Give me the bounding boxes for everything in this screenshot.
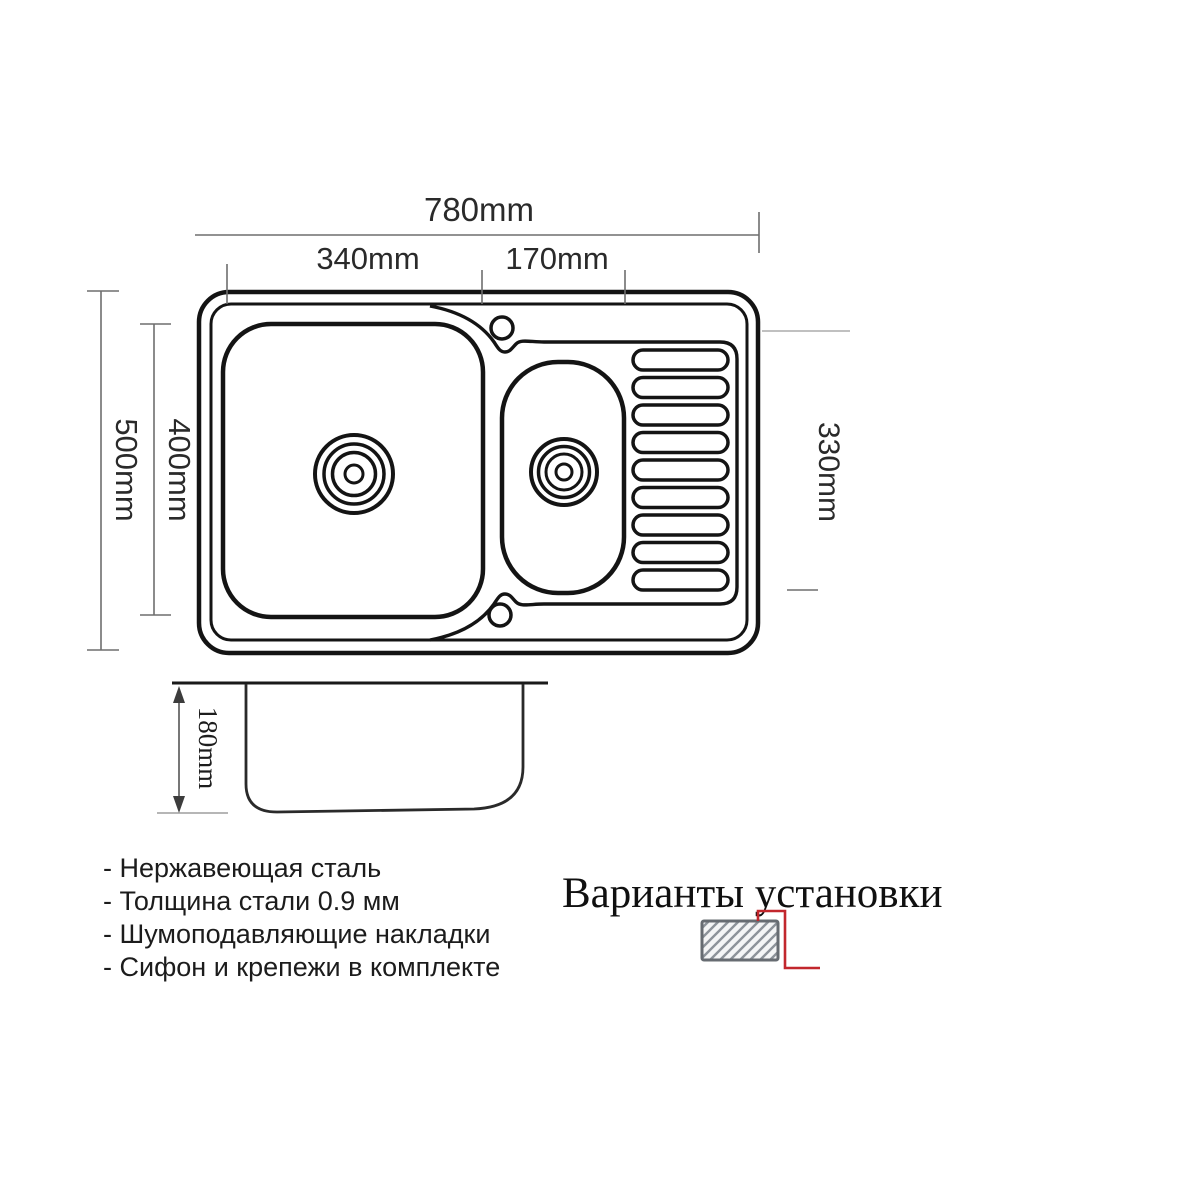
sink-spec-diagram: 780mm 340mm 170mm 500mm 400mm 330mm 180m… xyxy=(0,0,1200,1200)
drainboard-rib xyxy=(633,378,728,398)
small-drain-center xyxy=(556,464,572,480)
side-view-bowl-profile xyxy=(246,684,523,812)
drainboard-ribs xyxy=(633,350,728,590)
dim-bowl-depth-label: 400mm xyxy=(162,418,197,521)
dim-main-bowl-width-label: 340mm xyxy=(316,241,419,276)
drainboard-rib xyxy=(633,433,728,453)
drainboard-rib xyxy=(633,488,728,508)
main-bowl xyxy=(223,324,483,617)
countertop-cross-section xyxy=(702,921,778,960)
main-drain-ring-inner xyxy=(333,453,376,496)
main-drain-center xyxy=(345,465,363,483)
drainboard-rib xyxy=(633,543,728,563)
dim-arrow-down xyxy=(173,796,185,813)
drainboard-rib xyxy=(633,405,728,425)
feature-item-siphon: - Сифон и крепежи в комплекте xyxy=(103,952,500,982)
small-bowl xyxy=(502,362,624,593)
feature-item-thickness: - Толщина стали 0.9 мм xyxy=(103,886,400,916)
main-bowl-drain xyxy=(315,435,393,513)
tap-hole-bottom xyxy=(489,604,511,626)
features-list: - Нержавеющая сталь - Толщина стали 0.9 … xyxy=(103,853,500,982)
dim-total-depth-label: 500mm xyxy=(109,418,144,521)
installation-title: Варианты установки xyxy=(562,870,943,917)
small-drain-ring-inner xyxy=(546,454,582,490)
dim-arrow-up xyxy=(173,686,185,703)
feature-item-noise-pads: - Шумоподавляющие накладки xyxy=(103,919,490,949)
small-bowl-drain xyxy=(531,439,597,505)
dim-drainboard-depth-label: 330mm xyxy=(812,422,845,522)
dim-total-width-label: 780mm xyxy=(424,191,534,228)
installation-diagram xyxy=(702,911,820,968)
tap-hole-top xyxy=(491,317,513,339)
drainboard-rib xyxy=(633,460,728,480)
sink-outer-rim xyxy=(199,292,758,653)
drainboard-rib xyxy=(633,570,728,590)
dim-small-bowl-width-label: 170mm xyxy=(505,241,608,276)
main-drain-ring-outer xyxy=(315,435,393,513)
drainboard-rib xyxy=(633,515,728,535)
feature-item-material: - Нержавеющая сталь xyxy=(103,853,381,883)
dim-bowl-height-label: 180mm xyxy=(193,707,223,790)
small-drain-ring-outer xyxy=(531,439,597,505)
drainboard-rib xyxy=(633,350,728,370)
sink-top-view xyxy=(199,292,758,653)
technical-drawing: 780mm 340mm 170mm 500mm 400mm 330mm 180m… xyxy=(0,0,1200,1200)
